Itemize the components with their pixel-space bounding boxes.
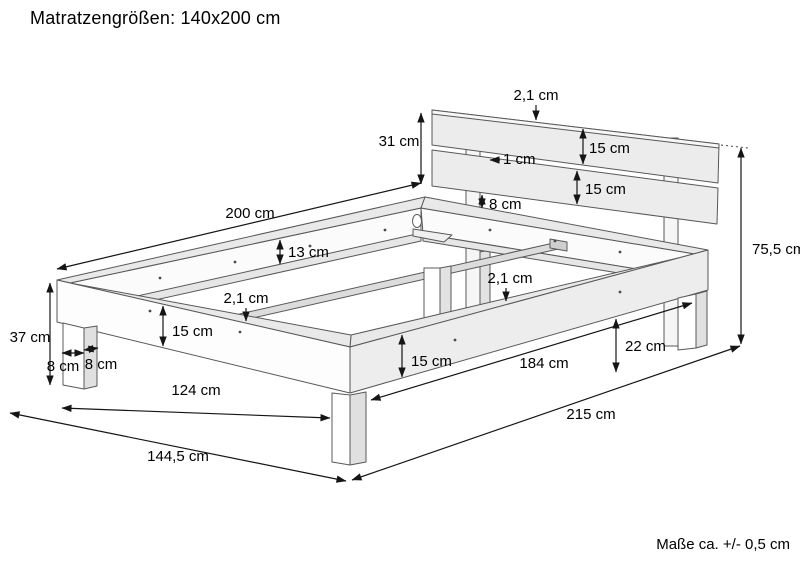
leg-foot-right: [332, 393, 350, 465]
dim-floor-clearance: 22 cm: [616, 319, 666, 372]
bed-frame: [57, 197, 708, 393]
dim-overall-height: 75,5 cm: [721, 145, 800, 344]
bolt-hole: [413, 215, 422, 228]
dim-overall-width: 144,5 cm: [10, 413, 346, 481]
dim-inner-leg-span-width: 124 cm: [62, 382, 330, 418]
dim-headboard-height: 31 cm: [379, 113, 421, 184]
dim-overall-height-label: 75,5 cm: [752, 241, 800, 258]
dim-headboard-thickness: 2,1 cm: [513, 87, 558, 120]
dim-side-rail-height-front-label: 15 cm: [172, 323, 213, 340]
dim-leg-height-label: 37 cm: [10, 329, 51, 346]
leg-head-right: [678, 294, 696, 350]
dim-slat-rail-thickness-label: 2,1 cm: [223, 290, 268, 307]
dim-headboard-top-board-label: 15 cm: [589, 140, 630, 157]
dim-overall-length-label: 215 cm: [566, 406, 615, 423]
dim-headboard-thickness-label: 2,1 cm: [513, 87, 558, 104]
dim-leg-depth-label: 8 cm: [85, 356, 118, 373]
dim-leg-height: 37 cm: [10, 283, 51, 385]
dim-headboard-to-frame-gap-label: 8 cm: [489, 196, 522, 213]
dim-inner-leg-span-width-label: 124 cm: [171, 382, 220, 399]
dim-frame-inner-depth: 13 cm: [280, 240, 329, 264]
dim-headboard-board-gap-label: 1 cm: [503, 151, 536, 168]
leg-foot-right-side: [350, 392, 366, 465]
dim-headboard-bottom-board-label: 15 cm: [585, 181, 626, 198]
dim-frame-inner-depth-label: 13 cm: [288, 244, 329, 261]
dim-center-bar-thickness-label: 2,1 cm: [487, 270, 532, 287]
dim-overall-width-label: 144,5 cm: [147, 448, 209, 465]
dim-leg-span-length-label: 184 cm: [519, 355, 568, 372]
leg-foot-left: [63, 323, 84, 389]
dim-floor-clearance-label: 22 cm: [625, 338, 666, 355]
dim-side-rail-height-side-label: 15 cm: [411, 353, 452, 370]
dim-leg-width-label: 8 cm: [47, 358, 80, 375]
drawing-page: Matratzengrößen: 140x200 cm: [0, 0, 800, 565]
tolerance-note: Maße ca. +/- 0,5 cm: [656, 536, 790, 553]
dim-frame-length-label: 200 cm: [225, 205, 274, 222]
bed-technical-drawing: 31 cm 2,1 cm 15 cm 1 cm 15 cm 8 cm: [0, 0, 800, 565]
dim-headboard-height-label: 31 cm: [379, 133, 420, 150]
leg-head-right-side: [696, 291, 707, 348]
